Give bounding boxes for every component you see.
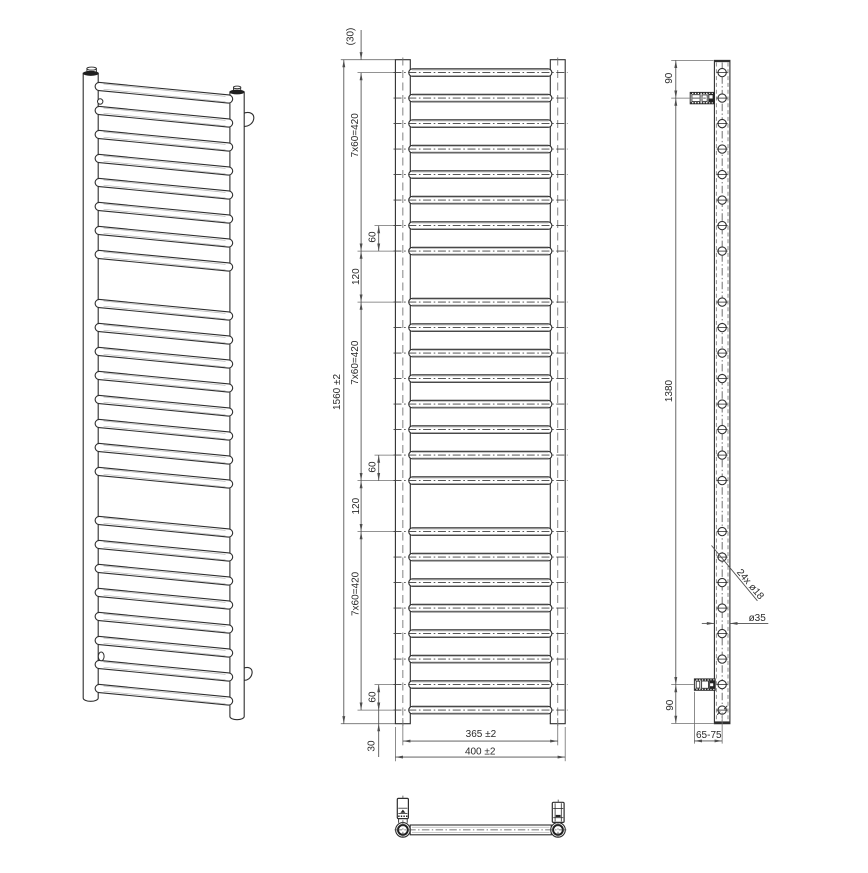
svg-text:60: 60 [368,231,379,243]
svg-text:ø35: ø35 [749,613,767,624]
svg-text:60: 60 [368,461,379,473]
svg-text:90: 90 [664,72,675,84]
svg-text:7x60=420: 7x60=420 [350,571,361,616]
svg-text:1560 ±2: 1560 ±2 [332,374,343,411]
svg-text:(30): (30) [346,28,357,46]
svg-text:90: 90 [665,699,676,711]
svg-text:1380: 1380 [664,379,675,402]
svg-text:365 ±2: 365 ±2 [466,729,497,740]
svg-text:120: 120 [351,497,362,514]
svg-text:65-75: 65-75 [696,730,722,741]
svg-text:30: 30 [367,740,378,752]
svg-text:7x60=420: 7x60=420 [350,340,361,385]
svg-text:60: 60 [368,691,379,703]
svg-text:7x60=420: 7x60=420 [350,113,361,158]
svg-text:120: 120 [351,268,362,285]
svg-text:400 ±2: 400 ±2 [465,746,496,757]
